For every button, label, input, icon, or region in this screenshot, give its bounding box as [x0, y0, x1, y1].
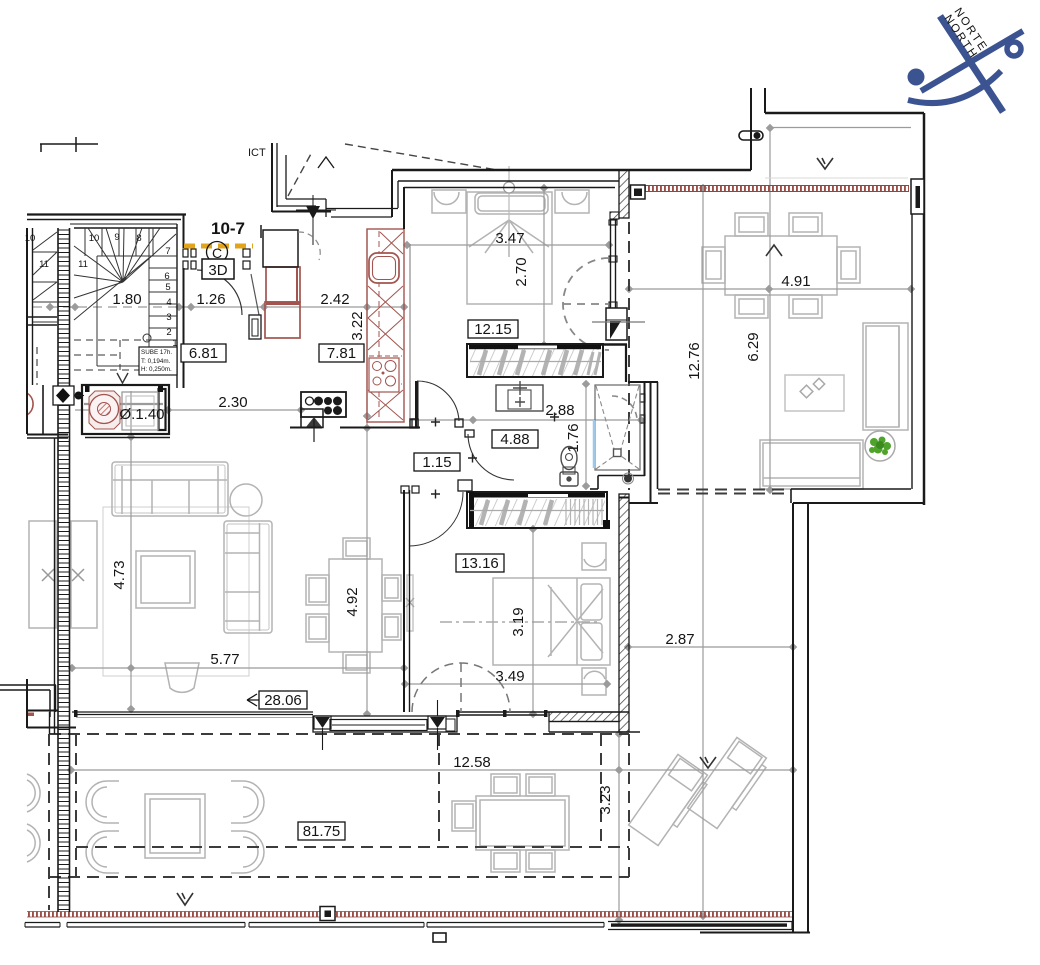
svg-text:4.91: 4.91 — [781, 273, 810, 290]
svg-text:10: 10 — [25, 233, 36, 244]
svg-text:11: 11 — [78, 259, 88, 270]
svg-text:7: 7 — [165, 246, 170, 257]
svg-text:1.26: 1.26 — [196, 291, 225, 308]
svg-text:T: 0,194m.: T: 0,194m. — [141, 358, 171, 365]
svg-text:H: 0,250m.: H: 0,250m. — [141, 366, 172, 373]
svg-text:5.77: 5.77 — [210, 651, 239, 668]
svg-text:81.75: 81.75 — [303, 823, 341, 840]
svg-text:1.15: 1.15 — [422, 454, 451, 471]
svg-text:3.22: 3.22 — [349, 311, 366, 340]
svg-text:6.81: 6.81 — [189, 345, 218, 362]
svg-text:3: 3 — [166, 312, 171, 323]
svg-text:2.30: 2.30 — [218, 394, 247, 411]
svg-text:3.49: 3.49 — [495, 668, 524, 685]
svg-text:4: 4 — [166, 297, 171, 308]
svg-text:2: 2 — [166, 327, 171, 338]
svg-text:3D: 3D — [208, 262, 227, 279]
svg-text:SUBE 17h.: SUBE 17h. — [141, 349, 172, 356]
svg-text:Ø.1.40: Ø.1.40 — [119, 406, 164, 423]
svg-text:7.81: 7.81 — [327, 345, 356, 362]
svg-text:11: 11 — [39, 259, 49, 270]
svg-text:28.06: 28.06 — [264, 692, 302, 709]
svg-text:3.47: 3.47 — [495, 230, 524, 247]
svg-text:2.70: 2.70 — [513, 257, 530, 286]
svg-text:2.88: 2.88 — [545, 402, 574, 419]
svg-text:1.80: 1.80 — [112, 291, 141, 308]
svg-text:13.16: 13.16 — [461, 555, 499, 572]
svg-text:3.19: 3.19 — [510, 607, 527, 636]
svg-text:12.76: 12.76 — [686, 342, 703, 380]
svg-text:ICT: ICT — [248, 147, 266, 159]
svg-text:2.42: 2.42 — [320, 291, 349, 308]
svg-text:10-7: 10-7 — [211, 219, 245, 238]
svg-text:1: 1 — [172, 338, 177, 349]
svg-text:4.73: 4.73 — [111, 560, 128, 589]
svg-text:6.29: 6.29 — [745, 332, 762, 361]
svg-text:4.88: 4.88 — [500, 431, 529, 448]
svg-text:2.87: 2.87 — [665, 631, 694, 648]
svg-text:5: 5 — [165, 282, 170, 293]
svg-text:1.76: 1.76 — [565, 423, 582, 452]
svg-text:12.58: 12.58 — [453, 754, 491, 771]
svg-text:4.92: 4.92 — [344, 587, 361, 616]
svg-text:9: 9 — [114, 232, 119, 243]
svg-text:3.23: 3.23 — [597, 785, 614, 814]
svg-text:12.15: 12.15 — [474, 321, 512, 338]
svg-text:10: 10 — [89, 233, 100, 244]
svg-text:8: 8 — [136, 233, 141, 244]
svg-text:C: C — [212, 245, 222, 261]
svg-text:6: 6 — [164, 271, 169, 282]
